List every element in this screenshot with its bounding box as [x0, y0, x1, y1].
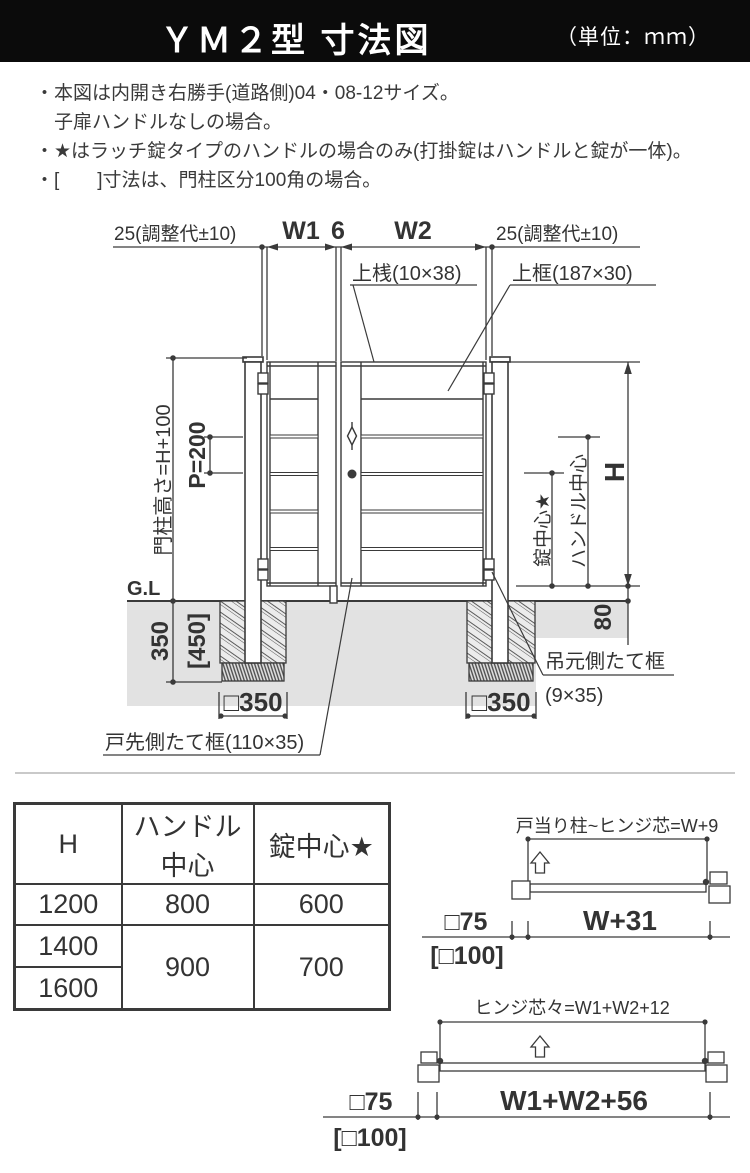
- title-bar: ＹＭ２型 寸法図 （単位：ｍｍ）: [0, 0, 750, 62]
- note-line-1: ・本図は内開き右勝手(道路側)04・08-12サイズ。: [35, 84, 735, 104]
- dim-80: 80: [590, 604, 617, 631]
- plan2-width: W1+W2+56: [500, 1085, 648, 1116]
- hinge-pivot-icon: [702, 1058, 708, 1064]
- plan-diagrams: 戸当り柱~ヒンジ芯=W+9 □75 [□100] W+31: [310, 790, 750, 1173]
- dim-pitch: P=200: [184, 421, 210, 488]
- plan2-post-size: □75: [350, 1088, 393, 1116]
- dim-w2: W2: [394, 217, 432, 245]
- dim-depth-alt: [450]: [184, 613, 211, 669]
- hinge-icon: [484, 373, 494, 383]
- swing-arrow-icon: [531, 1036, 549, 1057]
- col-header-handle-line1: ハンドル: [123, 805, 253, 844]
- hinge-pivot-icon: [703, 879, 709, 885]
- col-header-h: H: [15, 804, 122, 885]
- dim-footing-left: □350: [223, 687, 282, 717]
- note-line-4: ・[ ]寸法は、門柱区分100角の場合。: [35, 171, 735, 191]
- left-post: [245, 362, 261, 663]
- plan1-label: 戸当り柱~ヒンジ芯=W+9: [516, 816, 719, 836]
- plan2-post-size-alt: [□100]: [333, 1124, 406, 1152]
- gravel-left: [222, 663, 284, 681]
- hinge-bracket: [710, 872, 727, 884]
- dim-footing-right: □350: [471, 687, 530, 717]
- gate: [258, 362, 494, 603]
- label-top-frame: 上框(187×30): [512, 262, 633, 285]
- drop-rod: [330, 586, 337, 603]
- hinge-icon: [484, 559, 494, 569]
- main-diagram: 25(調整代±10) W1 6 W2 25(調整代±10) 上桟(10×38) …: [0, 215, 750, 775]
- label-hinge-stile: 吊元側たて框: [545, 650, 665, 673]
- cell-handle-900: 900: [122, 925, 254, 1010]
- dim-adjust-left: 25(調整代±10): [114, 223, 236, 245]
- lock-icon: [348, 470, 357, 479]
- plan1-width: W+31: [583, 905, 657, 936]
- hinge-icon: [484, 384, 494, 394]
- cell-handle-800: 800: [122, 884, 254, 925]
- hinge-icon: [258, 384, 268, 394]
- dim-h: H: [599, 462, 630, 482]
- plan1-post-size-alt: [□100]: [430, 942, 503, 970]
- hinge-icon: [258, 570, 268, 580]
- hinge-icon: [258, 559, 268, 569]
- dim-w1: W1: [282, 217, 320, 245]
- stop-post: [512, 881, 530, 899]
- col-header-handle: ハンドル 中心: [122, 804, 254, 885]
- dim-gap6: 6: [331, 217, 345, 245]
- plan1-post-size: □75: [445, 908, 488, 936]
- dim-post-height: 門柱高さ=H+100: [152, 404, 175, 555]
- gravel-right: [469, 663, 533, 681]
- page: ＹＭ２型 寸法図 （単位：ｍｍ） ・本図は内開き右勝手(道路側)04・08-12…: [0, 0, 750, 1173]
- col-header-handle-line2: 中心: [123, 844, 253, 883]
- plan2-label: ヒンジ芯々=W1+W2+12: [474, 998, 670, 1018]
- hinge-bracket: [708, 1052, 724, 1063]
- label-latch-stile: 戸先側たて框(110×35): [105, 731, 304, 754]
- dim-lock-center: 錠中心★: [532, 493, 554, 567]
- label-top-rail: 上桟(10×38): [352, 262, 462, 285]
- hinge-post: [706, 1065, 727, 1082]
- swing-arrow-icon: [531, 852, 549, 873]
- hinge-icon: [258, 373, 268, 383]
- cell-h-1400: 1400: [15, 925, 122, 967]
- note-line-3: ・★はラッチ錠タイプのハンドルの場合のみ(打掛錠はハンドルと錠が一体)。: [35, 142, 735, 162]
- dim-depth: 350: [147, 621, 174, 661]
- main-door: [341, 362, 486, 586]
- hinge-post: [709, 886, 730, 903]
- dim-adjust-right: 25(調整代±10): [496, 223, 618, 245]
- cell-h-1600: 1600: [15, 967, 122, 1010]
- section-divider: [15, 772, 735, 774]
- gate-bar: [440, 1063, 705, 1071]
- label-hinge-stile-size: (9×35): [545, 685, 603, 707]
- top-dimensions: [113, 244, 640, 362]
- note-line-2: 子扉ハンドルなしの場合。: [35, 113, 735, 133]
- page-title: ＹＭ２型 寸法図: [160, 13, 431, 62]
- gate-bar: [530, 884, 706, 892]
- child-door: [267, 362, 336, 586]
- hinge-post: [418, 1065, 439, 1082]
- dim-handle-center: ハンドル中心: [568, 454, 590, 568]
- cell-h-1200: 1200: [15, 884, 122, 925]
- hinge-bracket: [421, 1052, 437, 1063]
- unit-label: （単位：ｍｍ）: [556, 21, 710, 51]
- hinge-pivot-icon: [437, 1058, 443, 1064]
- label-gl: G.L: [127, 578, 160, 600]
- right-post: [492, 362, 508, 663]
- notes: ・本図は内開き右勝手(道路側)04・08-12サイズ。 子扉ハンドルなしの場合。…: [35, 84, 735, 200]
- hinge-icon: [484, 570, 494, 580]
